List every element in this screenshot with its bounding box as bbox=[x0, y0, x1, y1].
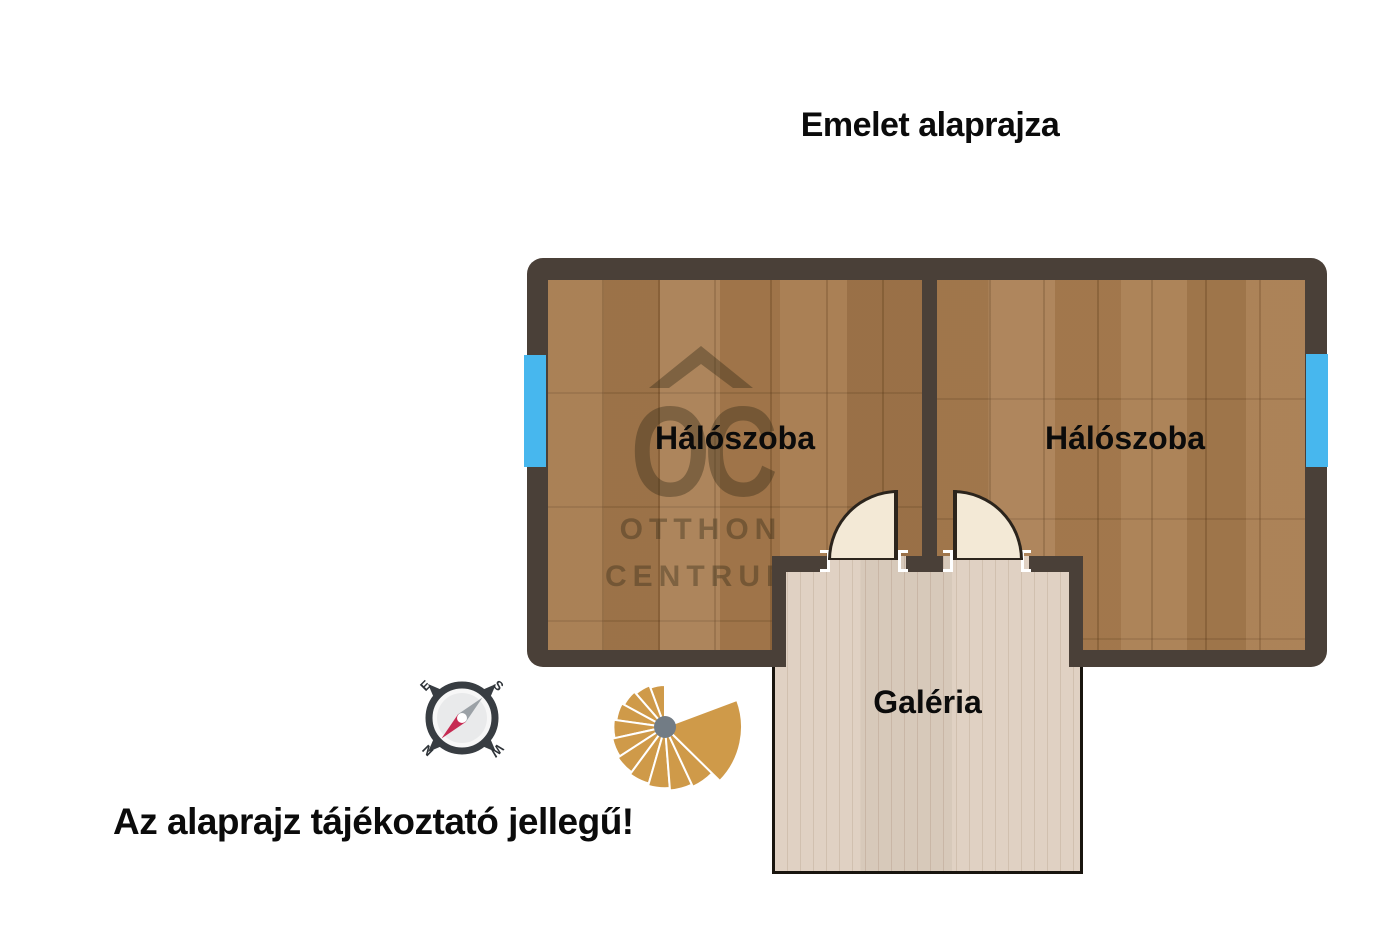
bedroom-right-label: Hálószoba bbox=[941, 420, 1309, 457]
bedroom-left-label: Hálószoba bbox=[548, 420, 922, 457]
window-left bbox=[524, 355, 546, 467]
page-title: Emelet alaprajza bbox=[650, 106, 1210, 145]
disclaimer-text: Az alaprajz tájékoztató jellegű! bbox=[113, 801, 634, 843]
compass-icon: E S N W bbox=[414, 670, 510, 766]
gallery-room: Galéria bbox=[772, 556, 1083, 874]
gallery-wall-right bbox=[1069, 556, 1083, 667]
floorplan-canvas: Emelet alaprajza OC OTTHON CENTRUM Hálós… bbox=[0, 0, 1400, 940]
door-frame-bracket bbox=[898, 550, 908, 572]
door-frame-bracket bbox=[943, 550, 953, 572]
window-right bbox=[1306, 354, 1328, 467]
gallery-wall-top-middle bbox=[906, 556, 943, 572]
gallery-wall-left bbox=[772, 556, 786, 667]
gallery-label: Galéria bbox=[775, 684, 1080, 721]
gallery-wall-top-right bbox=[1029, 556, 1083, 572]
spiral-staircase-icon bbox=[585, 655, 755, 795]
